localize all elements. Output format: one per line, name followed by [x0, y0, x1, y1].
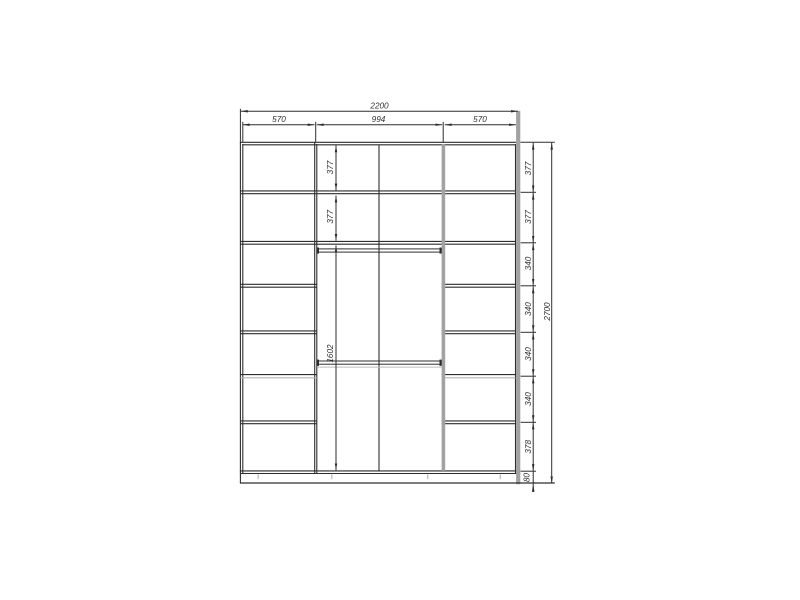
svg-text:377: 377 [326, 210, 335, 224]
svg-text:377: 377 [524, 210, 533, 224]
svg-text:378: 378 [524, 440, 533, 454]
svg-text:1602: 1602 [326, 344, 335, 363]
svg-text:570: 570 [473, 115, 487, 124]
svg-text:340: 340 [524, 302, 533, 316]
svg-text:2200: 2200 [369, 102, 389, 111]
svg-text:80: 80 [522, 473, 531, 483]
svg-text:570: 570 [272, 115, 286, 124]
svg-text:340: 340 [524, 392, 533, 406]
svg-text:340: 340 [524, 347, 533, 361]
svg-text:994: 994 [372, 115, 386, 124]
svg-text:377: 377 [326, 160, 335, 174]
svg-text:377: 377 [524, 161, 533, 175]
svg-text:340: 340 [524, 256, 533, 270]
svg-text:2700: 2700 [543, 302, 552, 322]
